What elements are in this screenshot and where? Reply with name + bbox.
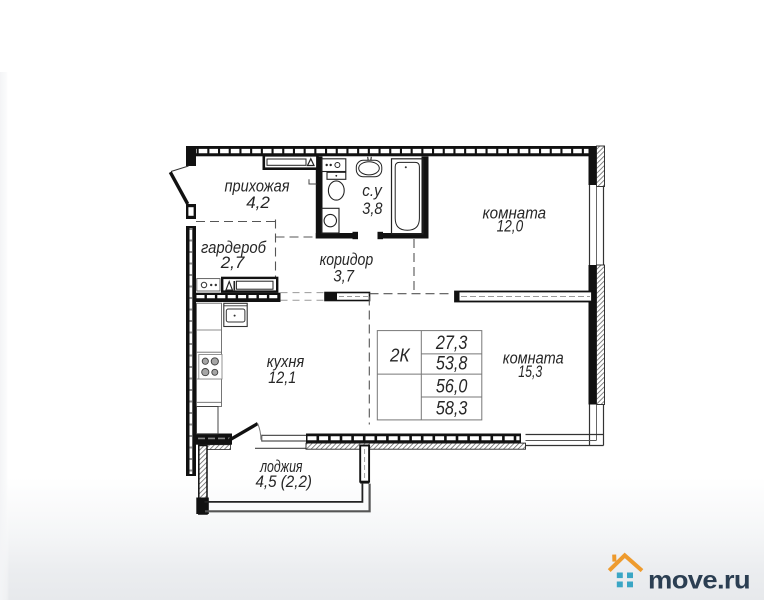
svg-text:3,8: 3,8 <box>362 199 383 218</box>
svg-text:27,3: 27,3 <box>435 333 468 354</box>
svg-text:move.ru: move.ru <box>648 567 750 595</box>
svg-text:12,1: 12,1 <box>268 368 296 387</box>
svg-text:12,0: 12,0 <box>497 217 524 236</box>
svg-text:4,5 (2,2): 4,5 (2,2) <box>255 472 312 491</box>
svg-text:2,7: 2,7 <box>220 253 245 272</box>
svg-text:2К: 2К <box>389 346 411 366</box>
svg-text:15,3: 15,3 <box>518 362 542 381</box>
svg-text:с.у: с.у <box>362 181 383 200</box>
svg-text:3,7: 3,7 <box>333 267 354 286</box>
svg-text:4,2: 4,2 <box>246 193 270 212</box>
svg-text:58,3: 58,3 <box>436 398 468 419</box>
svg-text:56,0: 56,0 <box>436 376 468 397</box>
svg-text:53,8: 53,8 <box>436 353 468 374</box>
